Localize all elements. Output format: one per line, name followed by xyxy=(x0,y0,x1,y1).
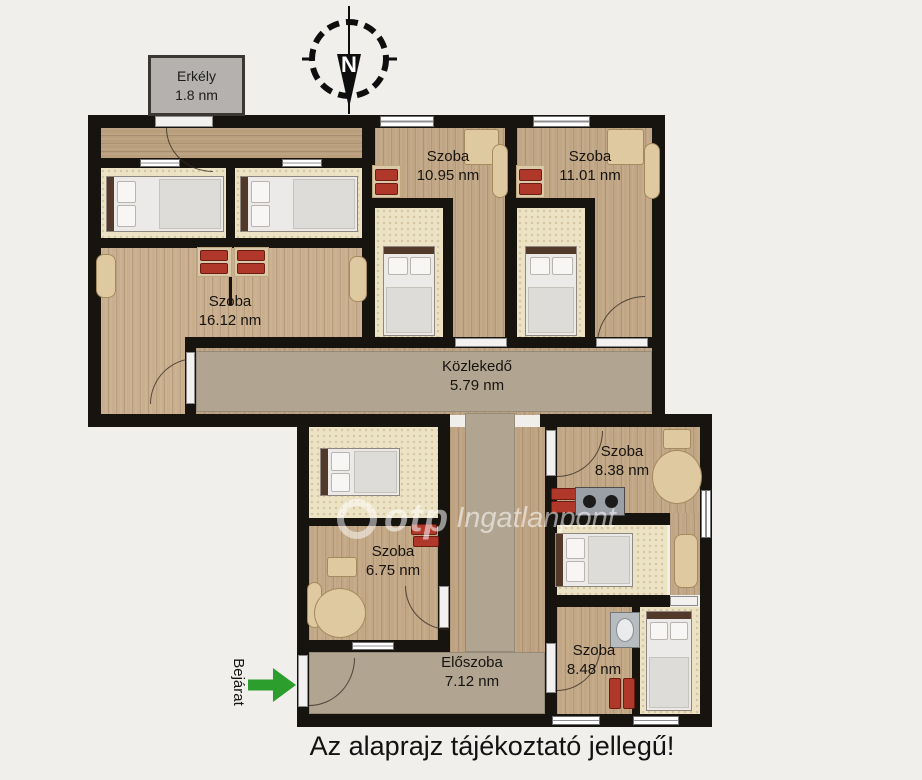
entrance-door xyxy=(298,655,308,707)
bed xyxy=(525,246,577,336)
radiator xyxy=(551,488,577,500)
room-label-szoba-1612: Szoba16.12 nm xyxy=(170,293,290,331)
stove xyxy=(575,487,625,516)
room-label-szoba-675: Szoba6.75 nm xyxy=(333,543,453,581)
room-label-szoba-848: Szoba8.48 nm xyxy=(534,642,654,680)
radiator xyxy=(623,678,635,709)
cabinet xyxy=(674,534,698,588)
disclaimer-text: Az alaprajz tájékoztató jellegű! xyxy=(232,731,752,762)
radiator xyxy=(200,263,228,274)
wall xyxy=(362,115,375,348)
window xyxy=(533,116,590,127)
chair xyxy=(96,254,116,298)
window xyxy=(140,159,180,167)
room-label-kozlekedo: Közlekedő5.79 nm xyxy=(397,358,557,396)
door-szoba-1612 xyxy=(186,352,195,404)
room-label-eloszoba: Előszoba7.12 nm xyxy=(392,654,552,692)
door-mid-alcove xyxy=(670,596,698,606)
room-label-szoba-1095: Szoba10.95 nm xyxy=(388,148,508,186)
window xyxy=(352,642,394,650)
door-szoba-675 xyxy=(439,586,449,628)
compass-north-label: N xyxy=(341,52,357,77)
balcony-area: 1.8 nm xyxy=(175,86,218,104)
entrance-label: Bejárat xyxy=(227,647,247,717)
bed xyxy=(555,533,633,587)
bed xyxy=(240,176,358,232)
wall xyxy=(226,158,235,248)
window xyxy=(701,490,711,538)
bed xyxy=(106,176,224,232)
entrance-arrow-icon xyxy=(248,668,296,702)
radiator xyxy=(609,678,621,709)
wall xyxy=(185,337,652,348)
bed xyxy=(383,246,435,336)
wall xyxy=(540,414,712,427)
window xyxy=(282,159,322,167)
wall xyxy=(443,198,453,348)
room-label-szoba-1101: Szoba11.01 nm xyxy=(530,148,650,186)
wall xyxy=(557,595,670,607)
door-szoba-1101 xyxy=(596,338,648,347)
mid-corridor-carpet xyxy=(465,413,515,652)
radiator xyxy=(551,501,577,513)
radiator xyxy=(237,263,265,274)
floor-top-hallway xyxy=(100,128,365,160)
window xyxy=(380,116,434,127)
wall xyxy=(585,198,595,348)
room-label-szoba-838: Szoba8.38 nm xyxy=(562,443,682,481)
bed xyxy=(320,448,400,496)
radiator xyxy=(411,524,437,535)
door-szoba-838 xyxy=(546,430,556,476)
door-szoba-1095 xyxy=(455,338,507,347)
radiator xyxy=(237,250,265,261)
compass-icon: N xyxy=(302,2,398,116)
table-round xyxy=(314,588,366,638)
wall xyxy=(700,414,712,727)
window xyxy=(552,716,600,725)
radiator xyxy=(200,250,228,261)
wall xyxy=(96,238,368,248)
wall xyxy=(517,198,595,208)
wall xyxy=(375,198,453,208)
balcony-door xyxy=(155,116,213,127)
balcony-label: Erkély xyxy=(177,67,216,85)
wall xyxy=(88,414,448,427)
chair xyxy=(349,256,367,302)
floorplan: Erkély 1.8 nm N Szoba10.95 nm Szoba11.01… xyxy=(0,0,922,780)
balcony: Erkély 1.8 nm xyxy=(148,55,245,116)
window xyxy=(633,716,679,725)
